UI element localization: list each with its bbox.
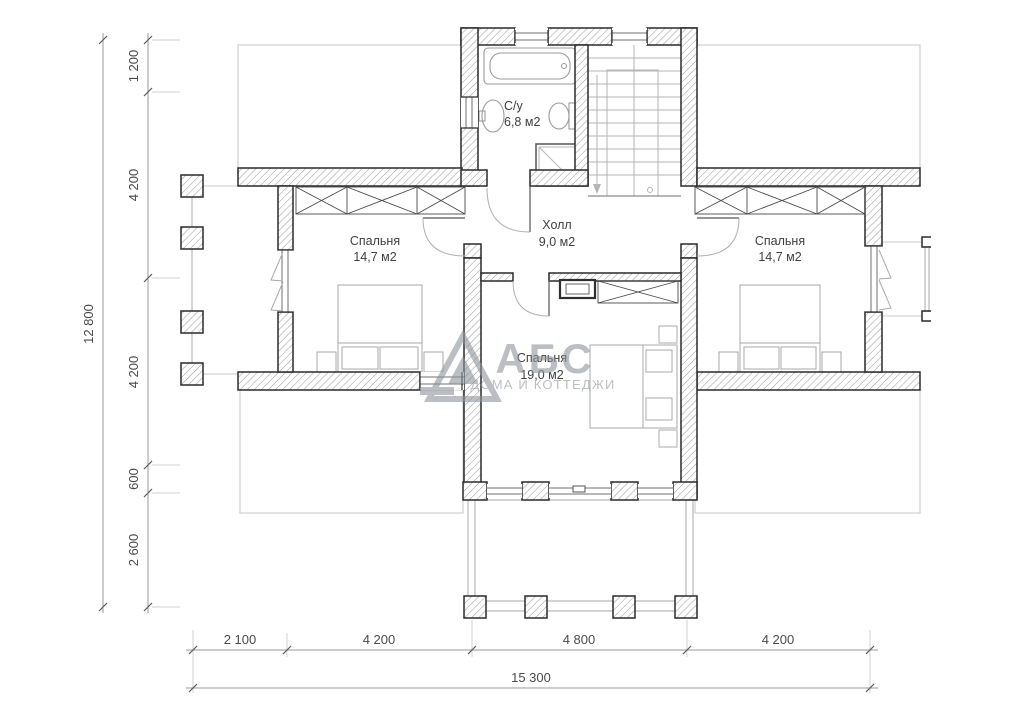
wall-segment: [278, 186, 293, 250]
wall-segment: [530, 170, 588, 186]
balcony-bracket-icon: [922, 237, 931, 247]
wall-segment: [522, 482, 549, 500]
door-left-bedroom: [423, 218, 465, 256]
bathtub: [484, 48, 576, 84]
wall-segment: [463, 482, 487, 500]
wall-segment: [481, 273, 513, 281]
staircase: [588, 45, 681, 196]
roof-outline-bottom-left: [240, 390, 463, 513]
toilet: [549, 103, 578, 129]
watermark: АБС ДОМА И КОТТЕДЖИ: [420, 335, 616, 399]
dim-left-3: 4 200: [126, 356, 141, 389]
dim-left-5: 2 600: [126, 534, 141, 567]
terrace-structure-bottom: [463, 500, 697, 611]
dim-bottom-3: 4 800: [563, 632, 596, 647]
wall-segment: [681, 244, 697, 258]
dim-left-total: 12 800: [81, 304, 96, 344]
pillar: [675, 596, 697, 618]
wardrobe-right-bedroom: [695, 187, 865, 214]
window-center-south-1: [487, 484, 522, 498]
room-area-hall: 9,0 м2: [539, 235, 575, 249]
room-area-bathroom: 6,8 м2: [504, 115, 540, 129]
nightstand: [317, 352, 336, 372]
window-center-south-2: [549, 484, 611, 498]
dimension-chain-bottom: 2 100 4 200 4 800 4 200 15 300: [186, 620, 878, 693]
sink: [479, 100, 504, 132]
pillar: [181, 311, 203, 333]
dim-bottom-1: 2 100: [224, 632, 257, 647]
nightstand: [424, 352, 443, 372]
window-dormer-1: [515, 28, 548, 45]
pillar: [464, 596, 486, 618]
nightstand: [822, 352, 841, 372]
balcony-bracket-icon: [922, 311, 931, 321]
watermark-tagline: ДОМА И КОТТЕДЖИ: [470, 377, 615, 392]
watermark-brand: АБС: [495, 335, 594, 382]
wardrobe-center-bedroom: [598, 281, 678, 303]
wall-segment: [673, 482, 697, 500]
dim-left-4: 600: [126, 468, 141, 490]
window-sill-mark: [573, 486, 585, 492]
wall-segment: [238, 372, 420, 390]
dim-bottom-4: 4 200: [762, 632, 795, 647]
stair-down-arrow-icon: [593, 184, 601, 194]
nightstand: [659, 430, 677, 447]
pillow: [781, 347, 816, 369]
bed-right-bedroom: [719, 285, 841, 372]
wall-segment: [865, 312, 882, 372]
pillow: [380, 347, 418, 369]
wall-segment: [461, 170, 487, 186]
porch-structure-left: [192, 177, 238, 384]
dim-bottom-total: 15 300: [511, 670, 551, 685]
wardrobe-left-bedroom: [296, 187, 465, 214]
bed-left-bedroom: [317, 285, 443, 372]
roof-outline-top-right: [697, 45, 920, 170]
nightstand: [659, 326, 677, 343]
pillow: [744, 347, 779, 369]
bathtub-faucet-icon: [562, 64, 567, 69]
terrace-pillars: [464, 596, 697, 618]
floor-plan-drawing: С/у 6,8 м2 Холл 9,0 м2 Спальня 14,7 м2 С…: [0, 0, 1024, 724]
window-dormer-2: [612, 28, 647, 45]
window-right-bedroom-east: [865, 246, 891, 312]
wall-segment: [575, 45, 588, 186]
wall-segment: [681, 258, 697, 498]
wall-segment: [611, 482, 638, 500]
pillow: [646, 398, 672, 420]
dimension-chain-left: 1 200 4 200 4 200 600 2 600 12 800: [81, 33, 180, 613]
room-area-bedroom-right: 14,7 м2: [758, 250, 801, 264]
window-left-bedroom-west: [271, 250, 293, 312]
wall-segment: [278, 312, 293, 372]
roof-outline-top-left: [238, 45, 462, 170]
pillar: [181, 227, 203, 249]
window-bathroom-west: [461, 97, 478, 128]
wall-segment: [681, 28, 697, 186]
nightstand: [719, 352, 738, 372]
dim-bottom-2: 4 200: [363, 632, 396, 647]
pillar: [613, 596, 635, 618]
dim-left-1: 1 200: [126, 50, 141, 83]
roof-outline-bottom-right: [695, 388, 920, 513]
chimney-shaft: [560, 280, 595, 298]
pillar: [525, 596, 547, 618]
pillar: [181, 175, 203, 197]
dim-left-2: 4 200: [126, 169, 141, 202]
pillow: [646, 350, 672, 372]
wall-segment: [464, 244, 481, 258]
pillar: [181, 363, 203, 385]
room-label-hall: Холл: [542, 218, 571, 232]
room-label-bedroom-right: Спальня: [755, 234, 805, 248]
room-area-bedroom-left: 14,7 м2: [353, 250, 396, 264]
door-center-bedroom: [513, 280, 549, 316]
window-center-south-3: [638, 484, 673, 498]
room-label-bedroom-left: Спальня: [350, 234, 400, 248]
floor-plan-page: С/у 6,8 м2 Холл 9,0 м2 Спальня 14,7 м2 С…: [0, 0, 1024, 724]
wall-segment: [238, 168, 462, 186]
pillow: [342, 347, 378, 369]
wall-segment: [697, 168, 920, 186]
room-label-bathroom: С/у: [504, 99, 524, 113]
door-right-bedroom: [697, 218, 739, 256]
wall-segment: [697, 372, 920, 390]
wall-segment: [548, 28, 612, 45]
wall-segment: [865, 186, 882, 246]
door-bathroom: [487, 186, 530, 232]
